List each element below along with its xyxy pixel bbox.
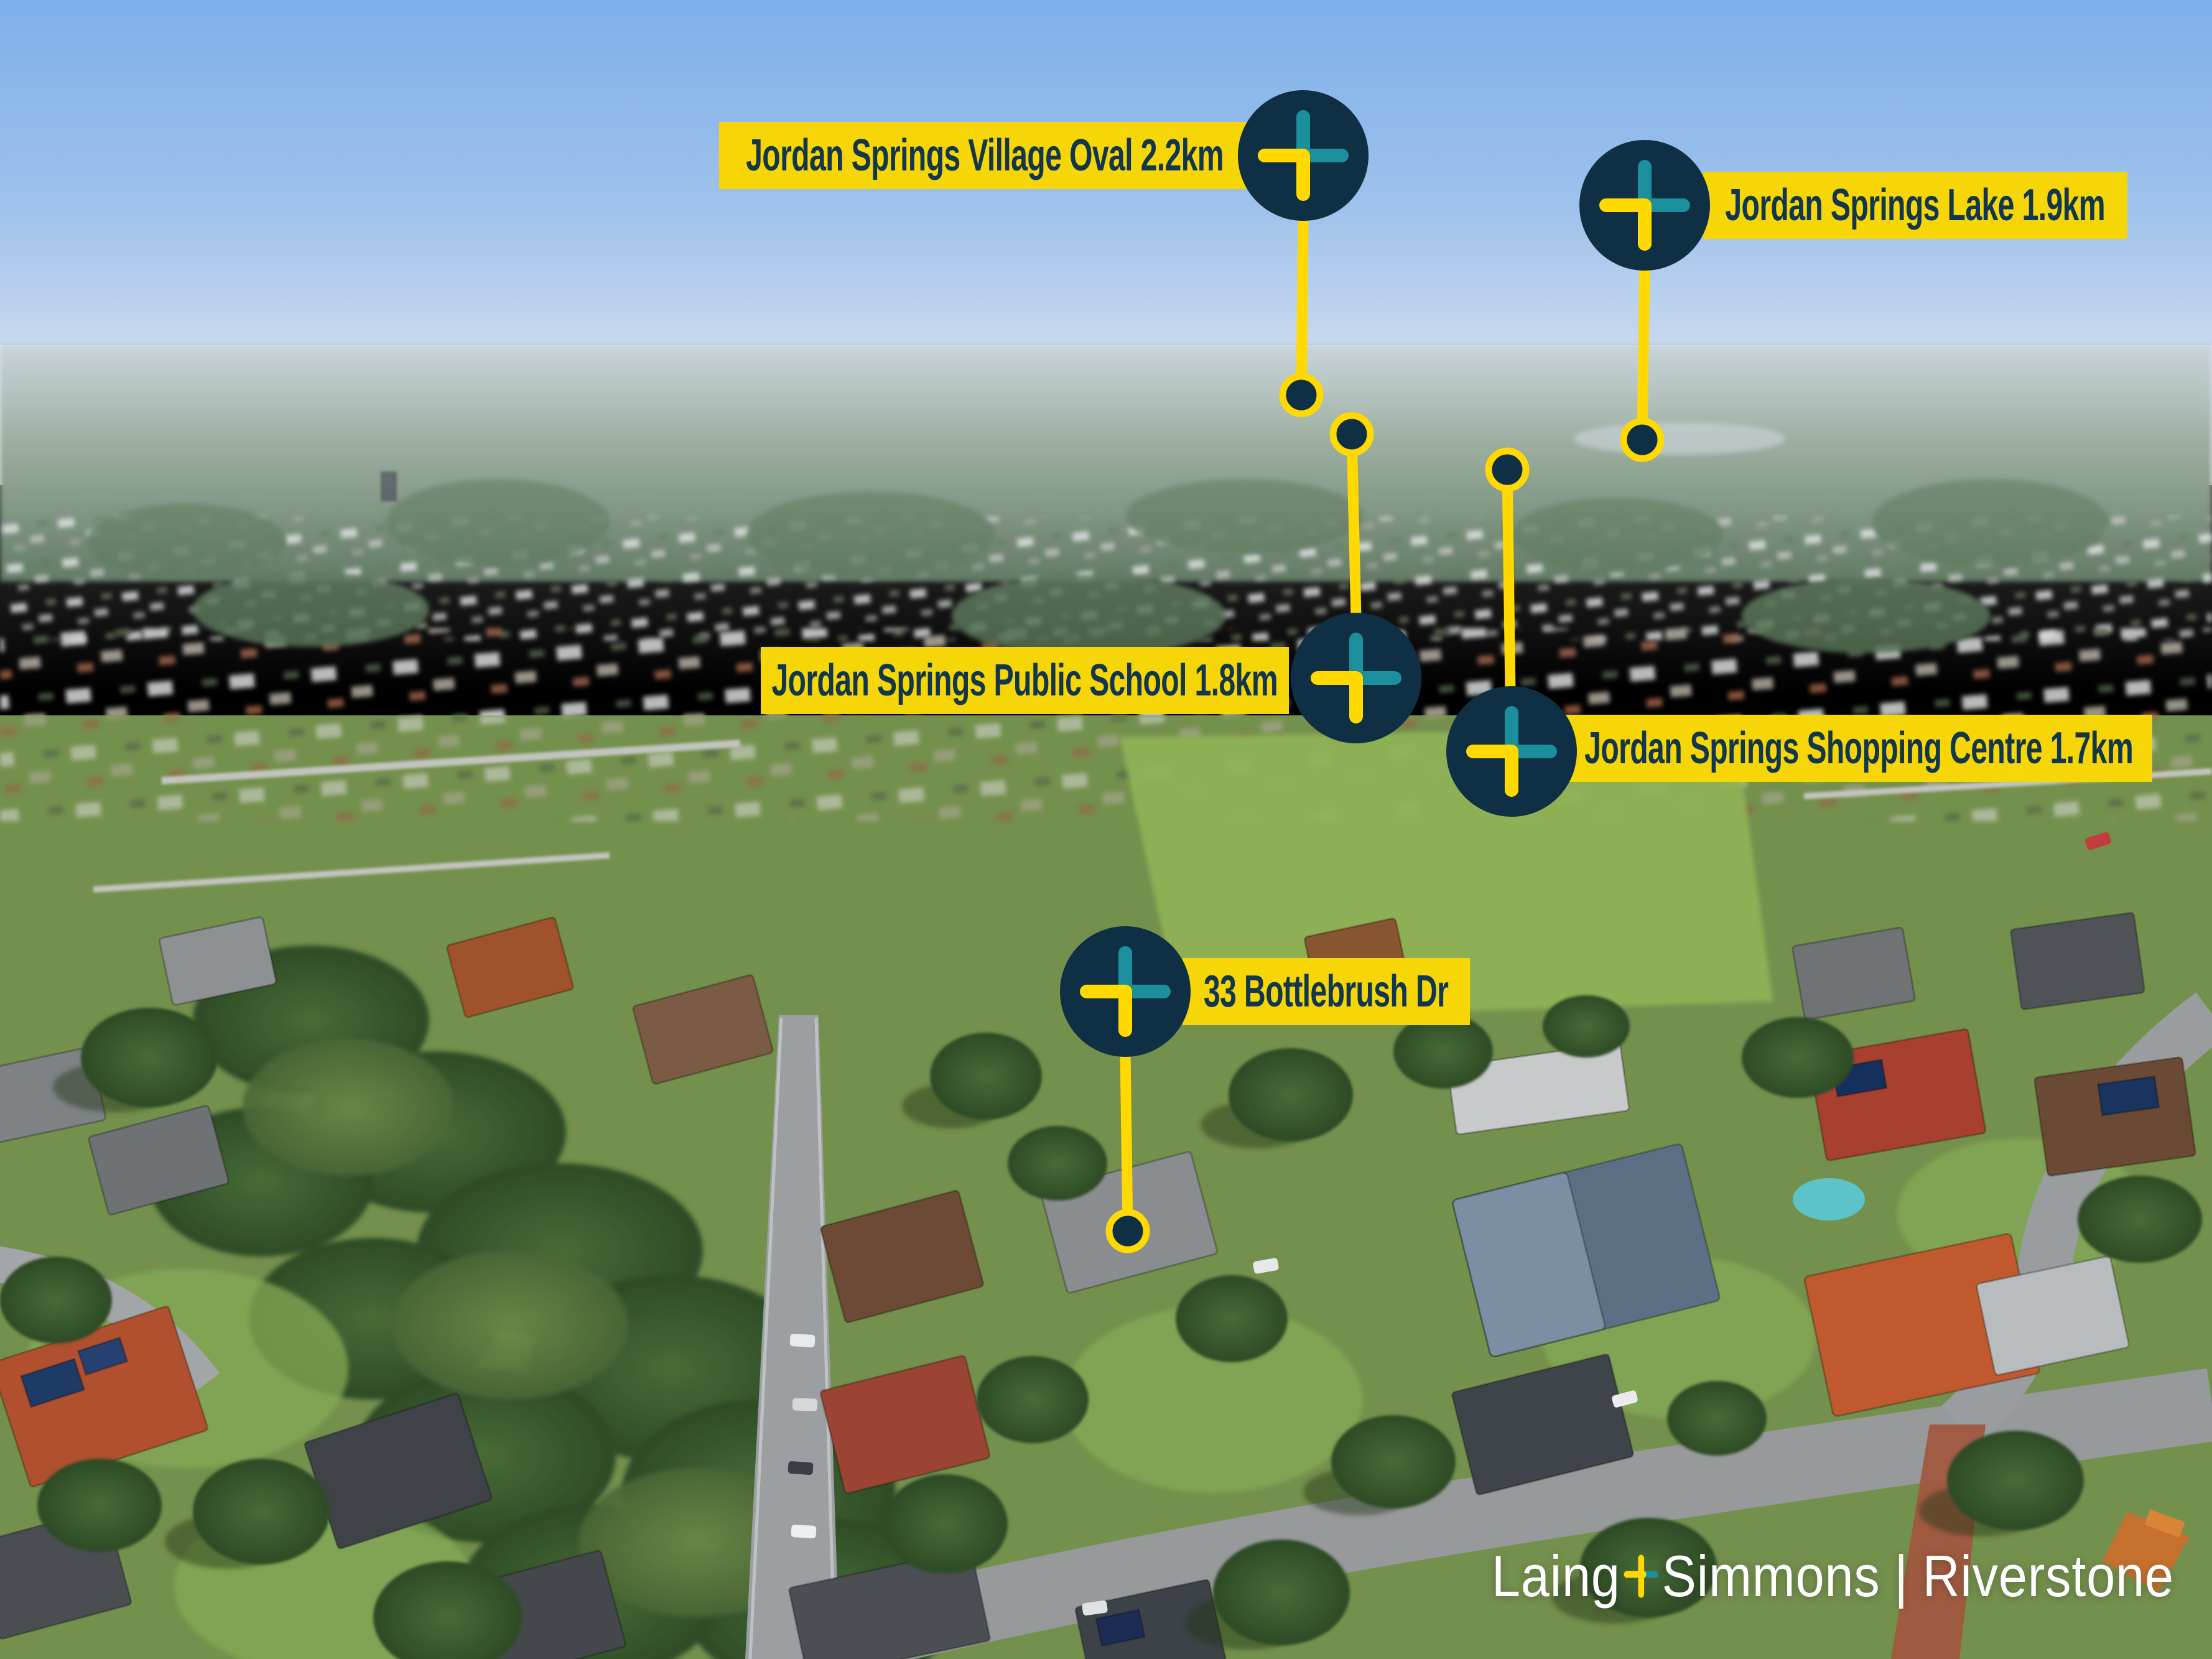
marker-badge-property bbox=[1060, 926, 1191, 1057]
agency-logo: Laing Simmons | Riverstone bbox=[1492, 1543, 2174, 1610]
plus-badge-icon bbox=[1579, 140, 1710, 271]
plus-badge-icon bbox=[1060, 926, 1191, 1057]
aerial-photo-stage: Jordan Springs Village Oval 2.2km Jordan… bbox=[0, 0, 2212, 1659]
logo-plus-icon bbox=[1624, 1552, 1658, 1601]
marker-label-text: Jordan Springs Lake 1.9km bbox=[1726, 180, 2106, 231]
marker-badge-village-oval bbox=[1238, 90, 1369, 221]
plus-badge-icon bbox=[1446, 686, 1577, 817]
marker-label-text: Jordan Springs Shopping Centre 1.7km bbox=[1584, 723, 2133, 774]
marker-label-property: 33 Bottlebrush Dr bbox=[1183, 958, 1470, 1025]
marker-badge-lake bbox=[1579, 140, 1710, 271]
marker-label-public-school: Jordan Springs Public School 1.8km bbox=[761, 647, 1289, 714]
marker-label-text: Jordan Springs Village Oval 2.2km bbox=[746, 130, 1224, 181]
plus-badge-icon bbox=[1291, 613, 1421, 743]
marker-badge-shopping-centre bbox=[1446, 686, 1577, 817]
aerial-photo-background bbox=[0, 0, 2212, 1659]
marker-label-village-oval: Jordan Springs Village Oval 2.2km bbox=[719, 122, 1250, 189]
logo-separator: | bbox=[1894, 1543, 1908, 1610]
logo-brand-left: Laing bbox=[1492, 1543, 1620, 1610]
marker-label-shopping-centre: Jordan Springs Shopping Centre 1.7km bbox=[1565, 715, 2152, 782]
marker-label-text: Jordan Springs Public School 1.8km bbox=[772, 655, 1278, 706]
logo-office: Riverstone bbox=[1923, 1543, 2174, 1610]
marker-label-text: 33 Bottlebrush Dr bbox=[1204, 966, 1448, 1017]
marker-label-lake: Jordan Springs Lake 1.9km bbox=[1703, 172, 2127, 239]
logo-brand-right: Simmons bbox=[1662, 1543, 1880, 1610]
marker-badge-public-school bbox=[1291, 613, 1421, 743]
plus-badge-icon bbox=[1238, 90, 1369, 221]
